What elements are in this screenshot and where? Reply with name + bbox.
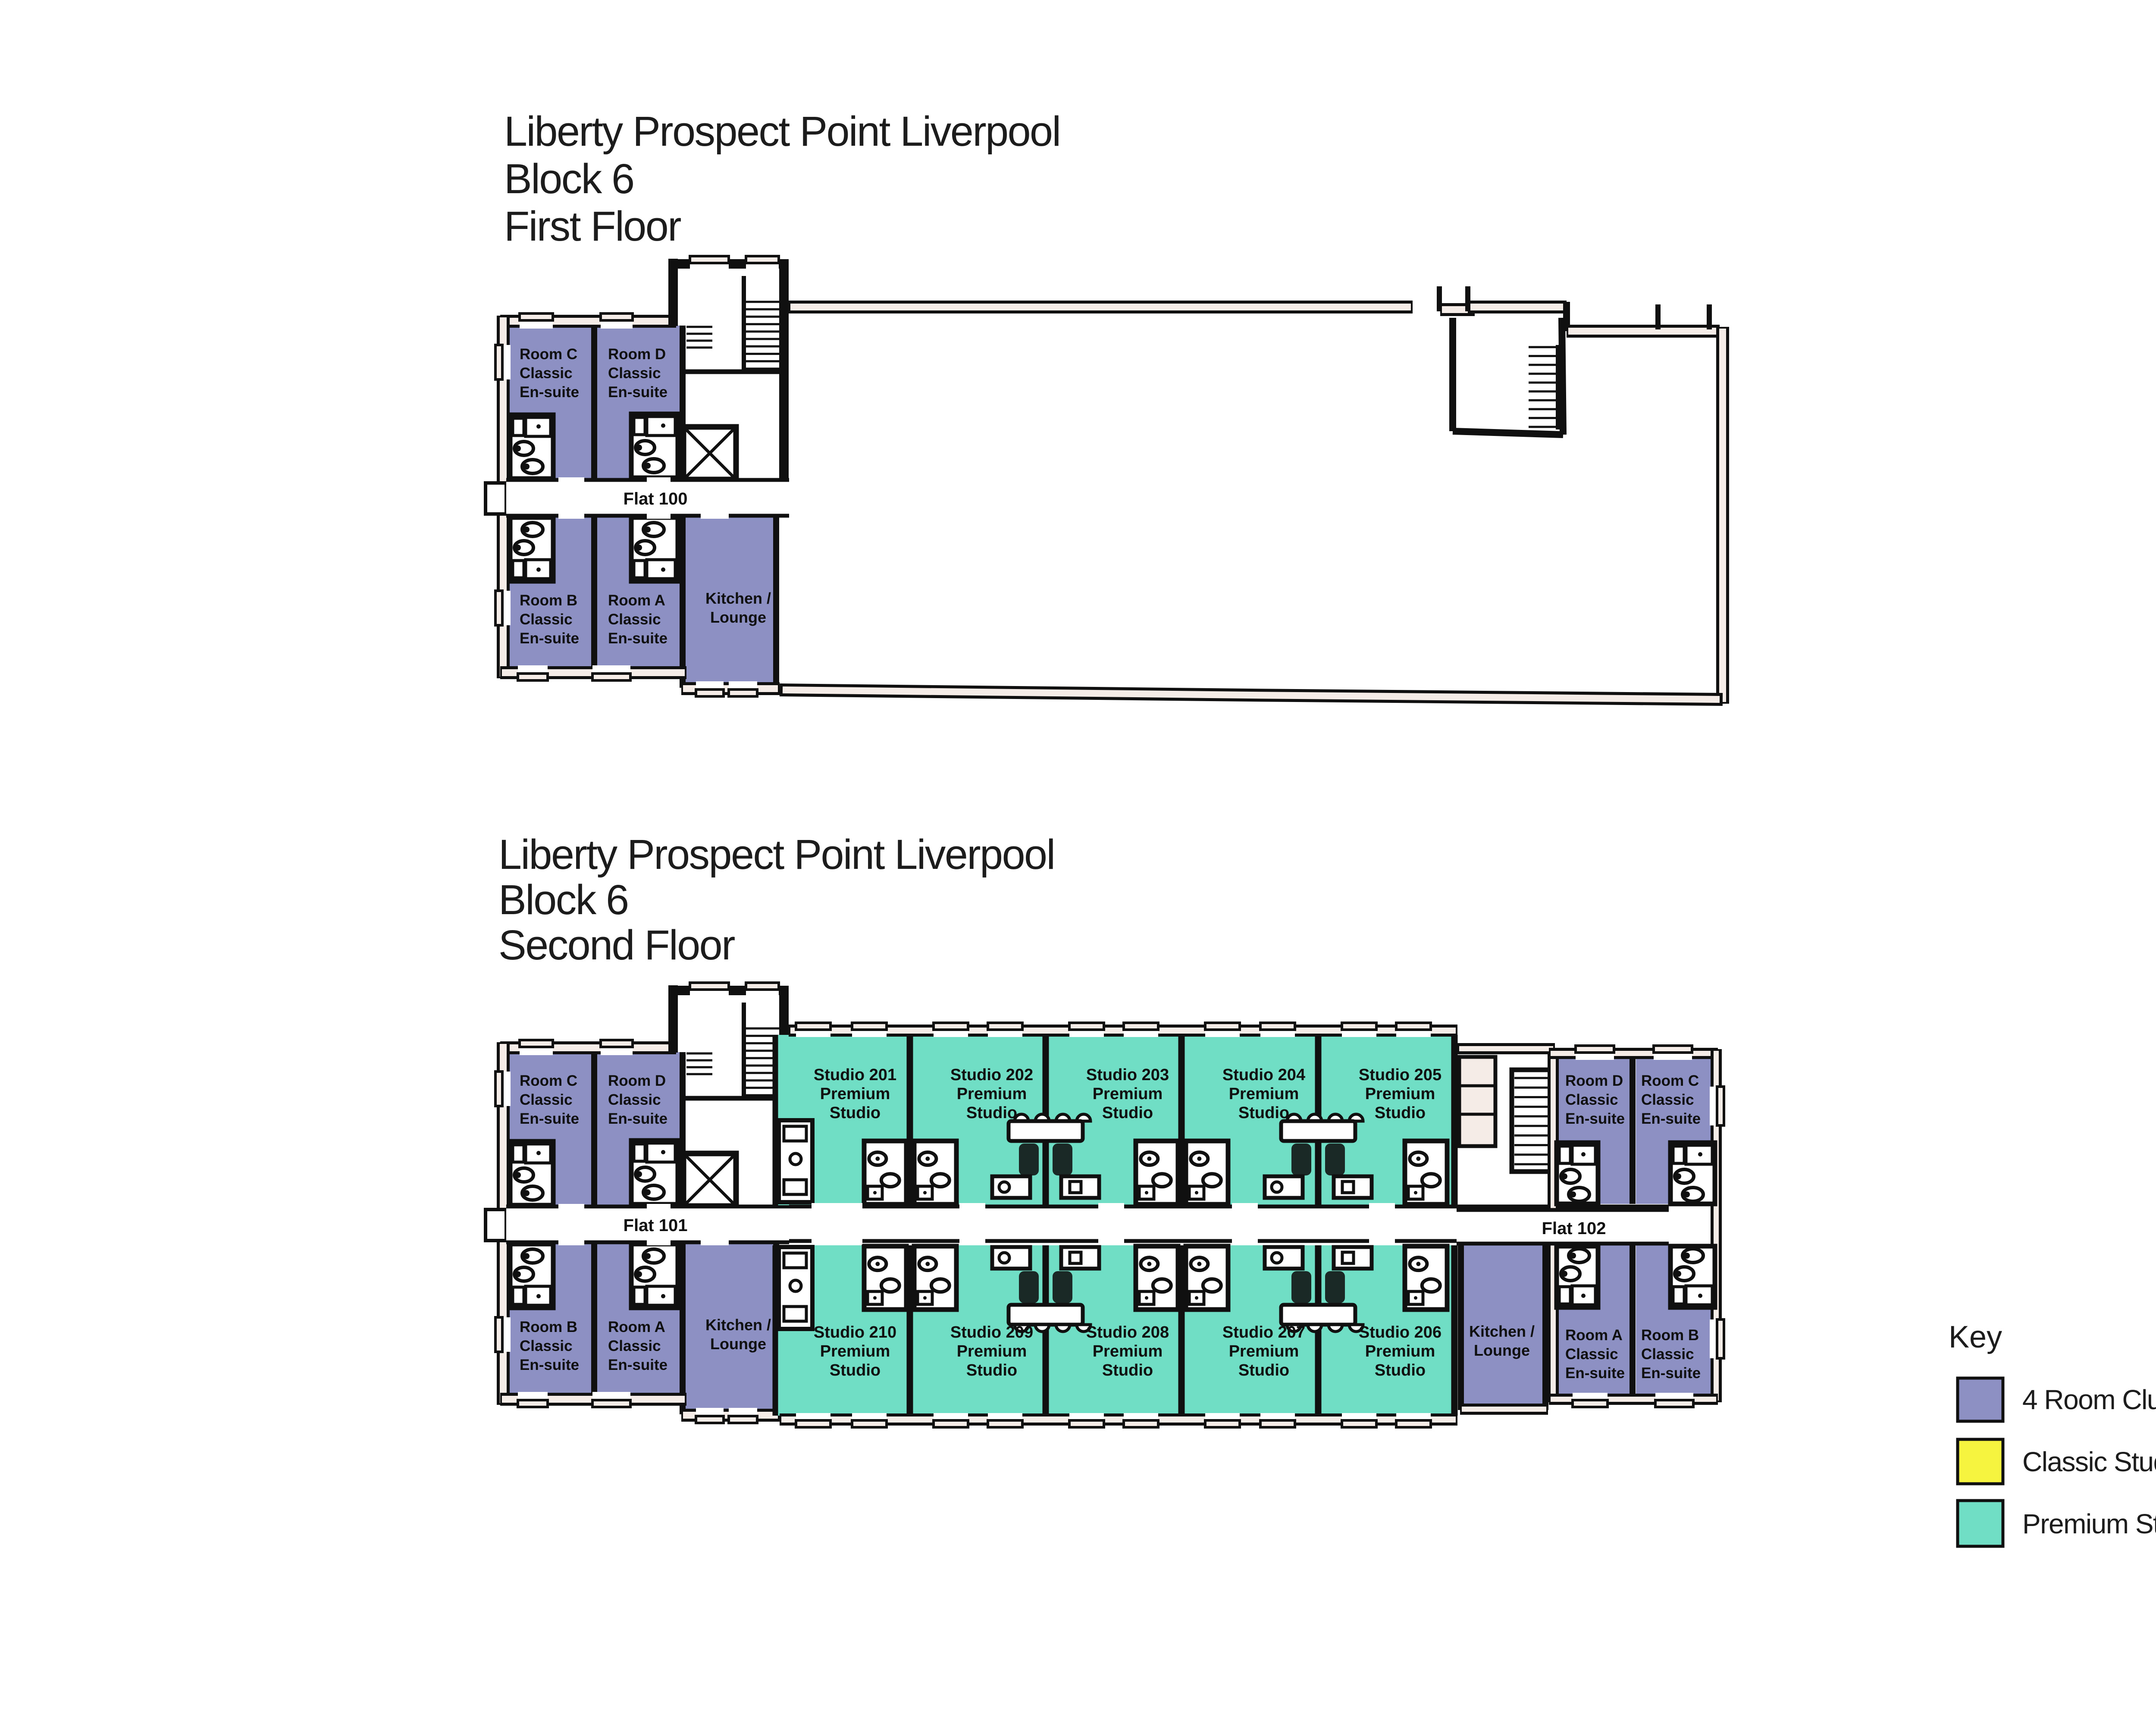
svg-text:Flat 101: Flat 101 (624, 1216, 688, 1235)
svg-text:Room AClassicEn-suite: Room AClassicEn-suite (608, 592, 667, 647)
svg-text:Room BClassicEn-suite: Room BClassicEn-suite (520, 1319, 579, 1373)
svg-text:Room DClassicEn-suite: Room DClassicEn-suite (608, 1072, 667, 1127)
svg-text:Room CClassicEn-suite: Room CClassicEn-suite (520, 1072, 579, 1127)
svg-text:Room CClassicEn-suite: Room CClassicEn-suite (1641, 1072, 1701, 1127)
svg-text:4 Room Cluster: 4 Room Cluster (2022, 1384, 2156, 1415)
svg-text:Room DClassicEn-suite: Room DClassicEn-suite (608, 346, 667, 401)
svg-text:Room CClassicEn-suite: Room CClassicEn-suite (520, 346, 579, 401)
svg-text:Room AClassicEn-suite: Room AClassicEn-suite (1565, 1327, 1625, 1382)
svg-text:Room BClassicEn-suite: Room BClassicEn-suite (520, 592, 579, 647)
svg-text:Premium Studio: Premium Studio (2022, 1508, 2156, 1539)
svg-text:Classic Studio: Classic Studio (2022, 1446, 2156, 1477)
svg-text:Key: Key (1949, 1320, 2002, 1354)
svg-text:Room AClassicEn-suite: Room AClassicEn-suite (608, 1319, 667, 1373)
svg-text:Flat 100: Flat 100 (624, 489, 688, 508)
svg-text:Flat 102: Flat 102 (1542, 1219, 1606, 1238)
svg-text:Room BClassicEn-suite: Room BClassicEn-suite (1641, 1327, 1701, 1382)
svg-text:Room DClassicEn-suite: Room DClassicEn-suite (1565, 1072, 1625, 1127)
